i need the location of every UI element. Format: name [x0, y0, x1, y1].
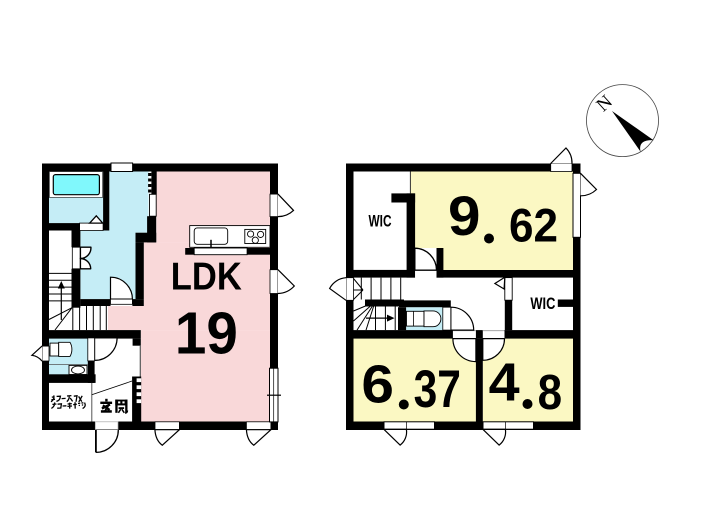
svg-text:LDK: LDK	[171, 256, 242, 299]
svg-text:9: 9	[448, 185, 481, 247]
svg-text:4: 4	[489, 353, 520, 413]
svg-text:19: 19	[175, 300, 238, 367]
svg-text:6: 6	[361, 354, 394, 414]
svg-text:37: 37	[414, 360, 461, 419]
svg-text:62: 62	[509, 199, 558, 252]
svg-text:WIC: WIC	[369, 212, 392, 231]
svg-text:WIC: WIC	[530, 294, 555, 313]
svg-text:8: 8	[538, 366, 563, 420]
